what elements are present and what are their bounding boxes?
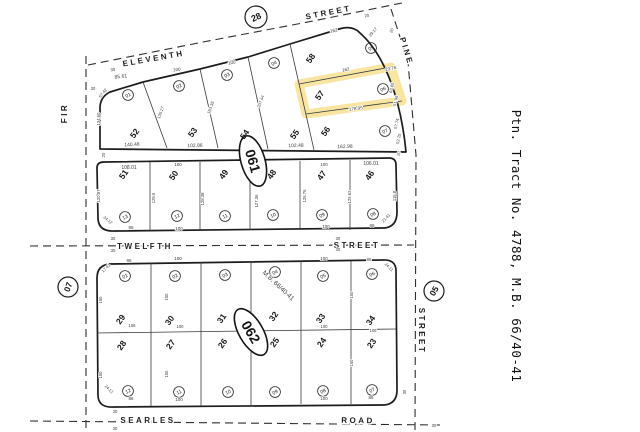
parcel-circle-09: 09 [270, 387, 281, 398]
map-ref-07: 07 [58, 277, 78, 297]
parcel-circle-06: 06 [367, 269, 378, 280]
parcel-circle-number: 07 [382, 128, 390, 136]
dim: 150 [349, 359, 354, 367]
dim: 102.86 [187, 143, 203, 150]
lot-26-label[interactable]: 26 [216, 336, 230, 350]
dim: 30 [111, 236, 116, 241]
parcel-circle-number: 01 [122, 273, 130, 281]
dim: 120.87 [96, 189, 101, 202]
parcel-circle-number: 07 [369, 387, 377, 395]
dim: 100 [175, 226, 183, 231]
dim: 100 [320, 396, 328, 401]
parcel-circle-09: 09 [317, 210, 328, 221]
dim: 30 [113, 426, 118, 431]
lot-23-label[interactable]: 23 [365, 336, 379, 350]
lot-50-label[interactable]: 50 [167, 168, 181, 182]
dim: 150 [164, 293, 169, 301]
page-reference-ovals: 061062 [228, 133, 275, 361]
dim: 115.8 [392, 190, 397, 201]
dim: 30 [432, 423, 437, 428]
dim: 150 [98, 371, 103, 379]
parcel-circle-number: 01 [125, 92, 133, 100]
dim: 162 [330, 27, 339, 33]
parcel-circle-08: 08 [368, 209, 379, 220]
map-ref-07-text: 07 [62, 281, 75, 294]
lot-49-label[interactable]: 49 [217, 167, 231, 181]
lot-27-label[interactable]: 27 [164, 337, 178, 351]
parcel-circle-06: 06 [378, 84, 389, 95]
parcel-circle-03: 03 [222, 70, 233, 81]
dim: 86 [369, 223, 375, 228]
parcel-circle-13: 13 [120, 212, 131, 223]
plat-map-canvas: 280705 061062 01020304050607131211100908… [0, 0, 640, 432]
parcel-circle-04: 04 [269, 58, 280, 69]
parcel-circle-08: 08 [318, 386, 329, 397]
dim: 150 [164, 370, 169, 378]
dim: 106 [370, 328, 378, 333]
parcel-circle-05: 05 [318, 271, 329, 282]
dim: 100 [174, 256, 182, 261]
lot-33-label[interactable]: 33 [314, 311, 328, 325]
dim: 100 [320, 162, 328, 167]
parcel-circle-number: 02 [172, 273, 180, 281]
parcel-circle-number: 04 [271, 60, 279, 68]
parcel-circle-number: 05 [320, 273, 328, 281]
map-labels: ELEVENTHSTREETPINEFIRTWELFTHSTREETSEARLE… [60, 4, 524, 431]
dim: 86 [128, 396, 134, 401]
lot-58-label[interactable]: 58 [304, 51, 318, 65]
parcel-circle-10: 10 [223, 387, 234, 398]
lot-53-label[interactable]: 53 [186, 125, 200, 139]
lot-34-label[interactable]: 34 [364, 313, 378, 327]
lot-29-label[interactable]: 29 [114, 312, 128, 326]
map-ref-05-text: 05 [427, 284, 441, 297]
dim: 86 [126, 258, 132, 263]
parcel-circle-02: 02 [174, 81, 185, 92]
street-searles-road-label: ROAD [341, 416, 375, 426]
parcel-circle-07: 07 [380, 126, 391, 137]
dim: 106 [129, 323, 137, 328]
dim: 106.01 [363, 161, 379, 167]
street-twelfth-street-label: STREET [334, 241, 381, 250]
dim: 125.62 [347, 190, 352, 203]
dim: 20 [388, 27, 394, 34]
dim: 30 [402, 389, 407, 394]
map-ref-05: 05 [424, 281, 444, 301]
street-twelfth-label: TWELFTH [117, 242, 173, 251]
dim: 30 [111, 248, 116, 253]
dim: 30 [336, 247, 341, 252]
parcel-circle-10: 10 [268, 210, 279, 221]
lot-24-label[interactable]: 24 [315, 335, 329, 349]
parcel-circle-number: 03 [222, 272, 230, 280]
dim: 30 [336, 236, 341, 241]
parcel-circle-number: 09 [272, 389, 280, 397]
dim: 135.27 [156, 105, 165, 119]
searles-road-dashed-line [30, 421, 440, 425]
dim: 150 [349, 291, 354, 299]
dim: 127.36 [254, 194, 259, 207]
dim: 52.25 [395, 132, 402, 144]
lot-55-label[interactable]: 55 [288, 127, 302, 141]
lot-30-label[interactable]: 30 [163, 313, 177, 327]
dim: 20 [364, 13, 370, 19]
street-eleventh-street-label: STREET [305, 4, 352, 22]
plat-map-viewer: 280705 061062 01020304050607131211100908… [0, 0, 640, 432]
parcel-circle-number: 03 [224, 72, 232, 80]
lot-28-label[interactable]: 28 [115, 338, 129, 352]
dim: 100 [174, 162, 182, 167]
street-pine-street-label: STREET [417, 308, 426, 355]
dim: 30 [91, 86, 96, 91]
dim: 140.48 [124, 142, 140, 149]
lot-32-label[interactable]: 32 [267, 309, 281, 323]
dim: 30 [113, 409, 118, 414]
parcel-circle-number: 08 [320, 388, 328, 396]
lot-line-52-53 [143, 82, 167, 148]
parcel-circle-12: 12 [172, 211, 183, 222]
street-searles-label: SEARLES [120, 416, 175, 425]
dim: 86 [366, 257, 372, 262]
parcel-circle-number: 13 [122, 214, 130, 222]
dim: 150 [98, 296, 103, 304]
parcel-circle-number: 09 [319, 212, 327, 220]
dim: 126.76 [302, 189, 307, 202]
dim: 86 [128, 225, 134, 230]
lot-57-label[interactable]: 57 [313, 88, 327, 102]
dim: 100 [175, 397, 183, 402]
parcel-circle-03: 03 [220, 270, 231, 281]
dim: 102.48 [288, 143, 304, 150]
parcel-circle-01: 01 [120, 271, 131, 282]
parcel-circle-02: 02 [170, 271, 181, 282]
parcel-circle-07: 07 [367, 385, 378, 396]
parcel-circle-number: 10 [270, 212, 278, 220]
dim: 20 [101, 152, 106, 157]
dim: 162.98 [337, 144, 353, 151]
dim: 128.38 [200, 192, 205, 205]
parcel-circle-number: 06 [369, 271, 377, 279]
dim: 100 [173, 66, 182, 72]
tract-caption: Ptn. Tract No. 4788, M.B. 66/40-41 [509, 110, 524, 383]
dim: 24.12 [102, 215, 114, 226]
dim: 57.74 [393, 117, 400, 129]
parcel-circle-12: 12 [123, 386, 134, 397]
lot-47-label[interactable]: 47 [315, 168, 329, 182]
dim: 207.44 [256, 94, 265, 108]
map-ref-28: 28 [245, 6, 267, 28]
parcel-circle-01: 01 [123, 90, 134, 101]
parcel-circle-number: 05 [368, 45, 376, 53]
dim: 30 [110, 67, 116, 73]
dim: 100 [228, 59, 237, 65]
parcel-circle-number: 08 [370, 211, 378, 219]
parcel-circle-number: 11 [176, 389, 183, 397]
dim: 29.17 [368, 26, 379, 38]
lot-52-label[interactable]: 52 [128, 126, 142, 140]
lot-31-label[interactable]: 31 [215, 311, 229, 325]
lot-25-label[interactable]: 25 [268, 335, 282, 349]
eleventh-street-dashed-line [88, 3, 402, 65]
dim: 24.12 [104, 383, 115, 394]
dim: 21.41 [380, 212, 391, 223]
parcel-circle-11: 11 [174, 387, 185, 398]
lot-56-label[interactable]: 56 [319, 124, 333, 138]
dim: 100 [322, 224, 330, 229]
dim: 100 [321, 324, 329, 329]
parcel-circle-11: 11 [220, 211, 231, 222]
dim: 100 [177, 324, 185, 329]
lot-46-label[interactable]: 46 [363, 168, 377, 182]
parcel-circle-number: 12 [125, 388, 133, 396]
dim: 129.5 [151, 192, 156, 203]
parcel-circle-number: 11 [222, 213, 229, 221]
dim: 134.60 [96, 112, 101, 125]
dim: 108.01 [121, 165, 137, 171]
street-fir-label: FIR [60, 103, 69, 123]
dim: 85.61 [114, 73, 127, 81]
parcel-circle-number: 06 [380, 86, 388, 94]
dim: 100 [320, 256, 328, 261]
street-pine-label: PINE [398, 36, 415, 66]
parcel-circle-number: 12 [174, 213, 182, 221]
dim: 86 [368, 395, 374, 400]
map-ref-28-text: 28 [249, 11, 262, 24]
parcel-circle-number: 10 [225, 389, 233, 397]
parcel-circle-number: 02 [176, 83, 184, 91]
